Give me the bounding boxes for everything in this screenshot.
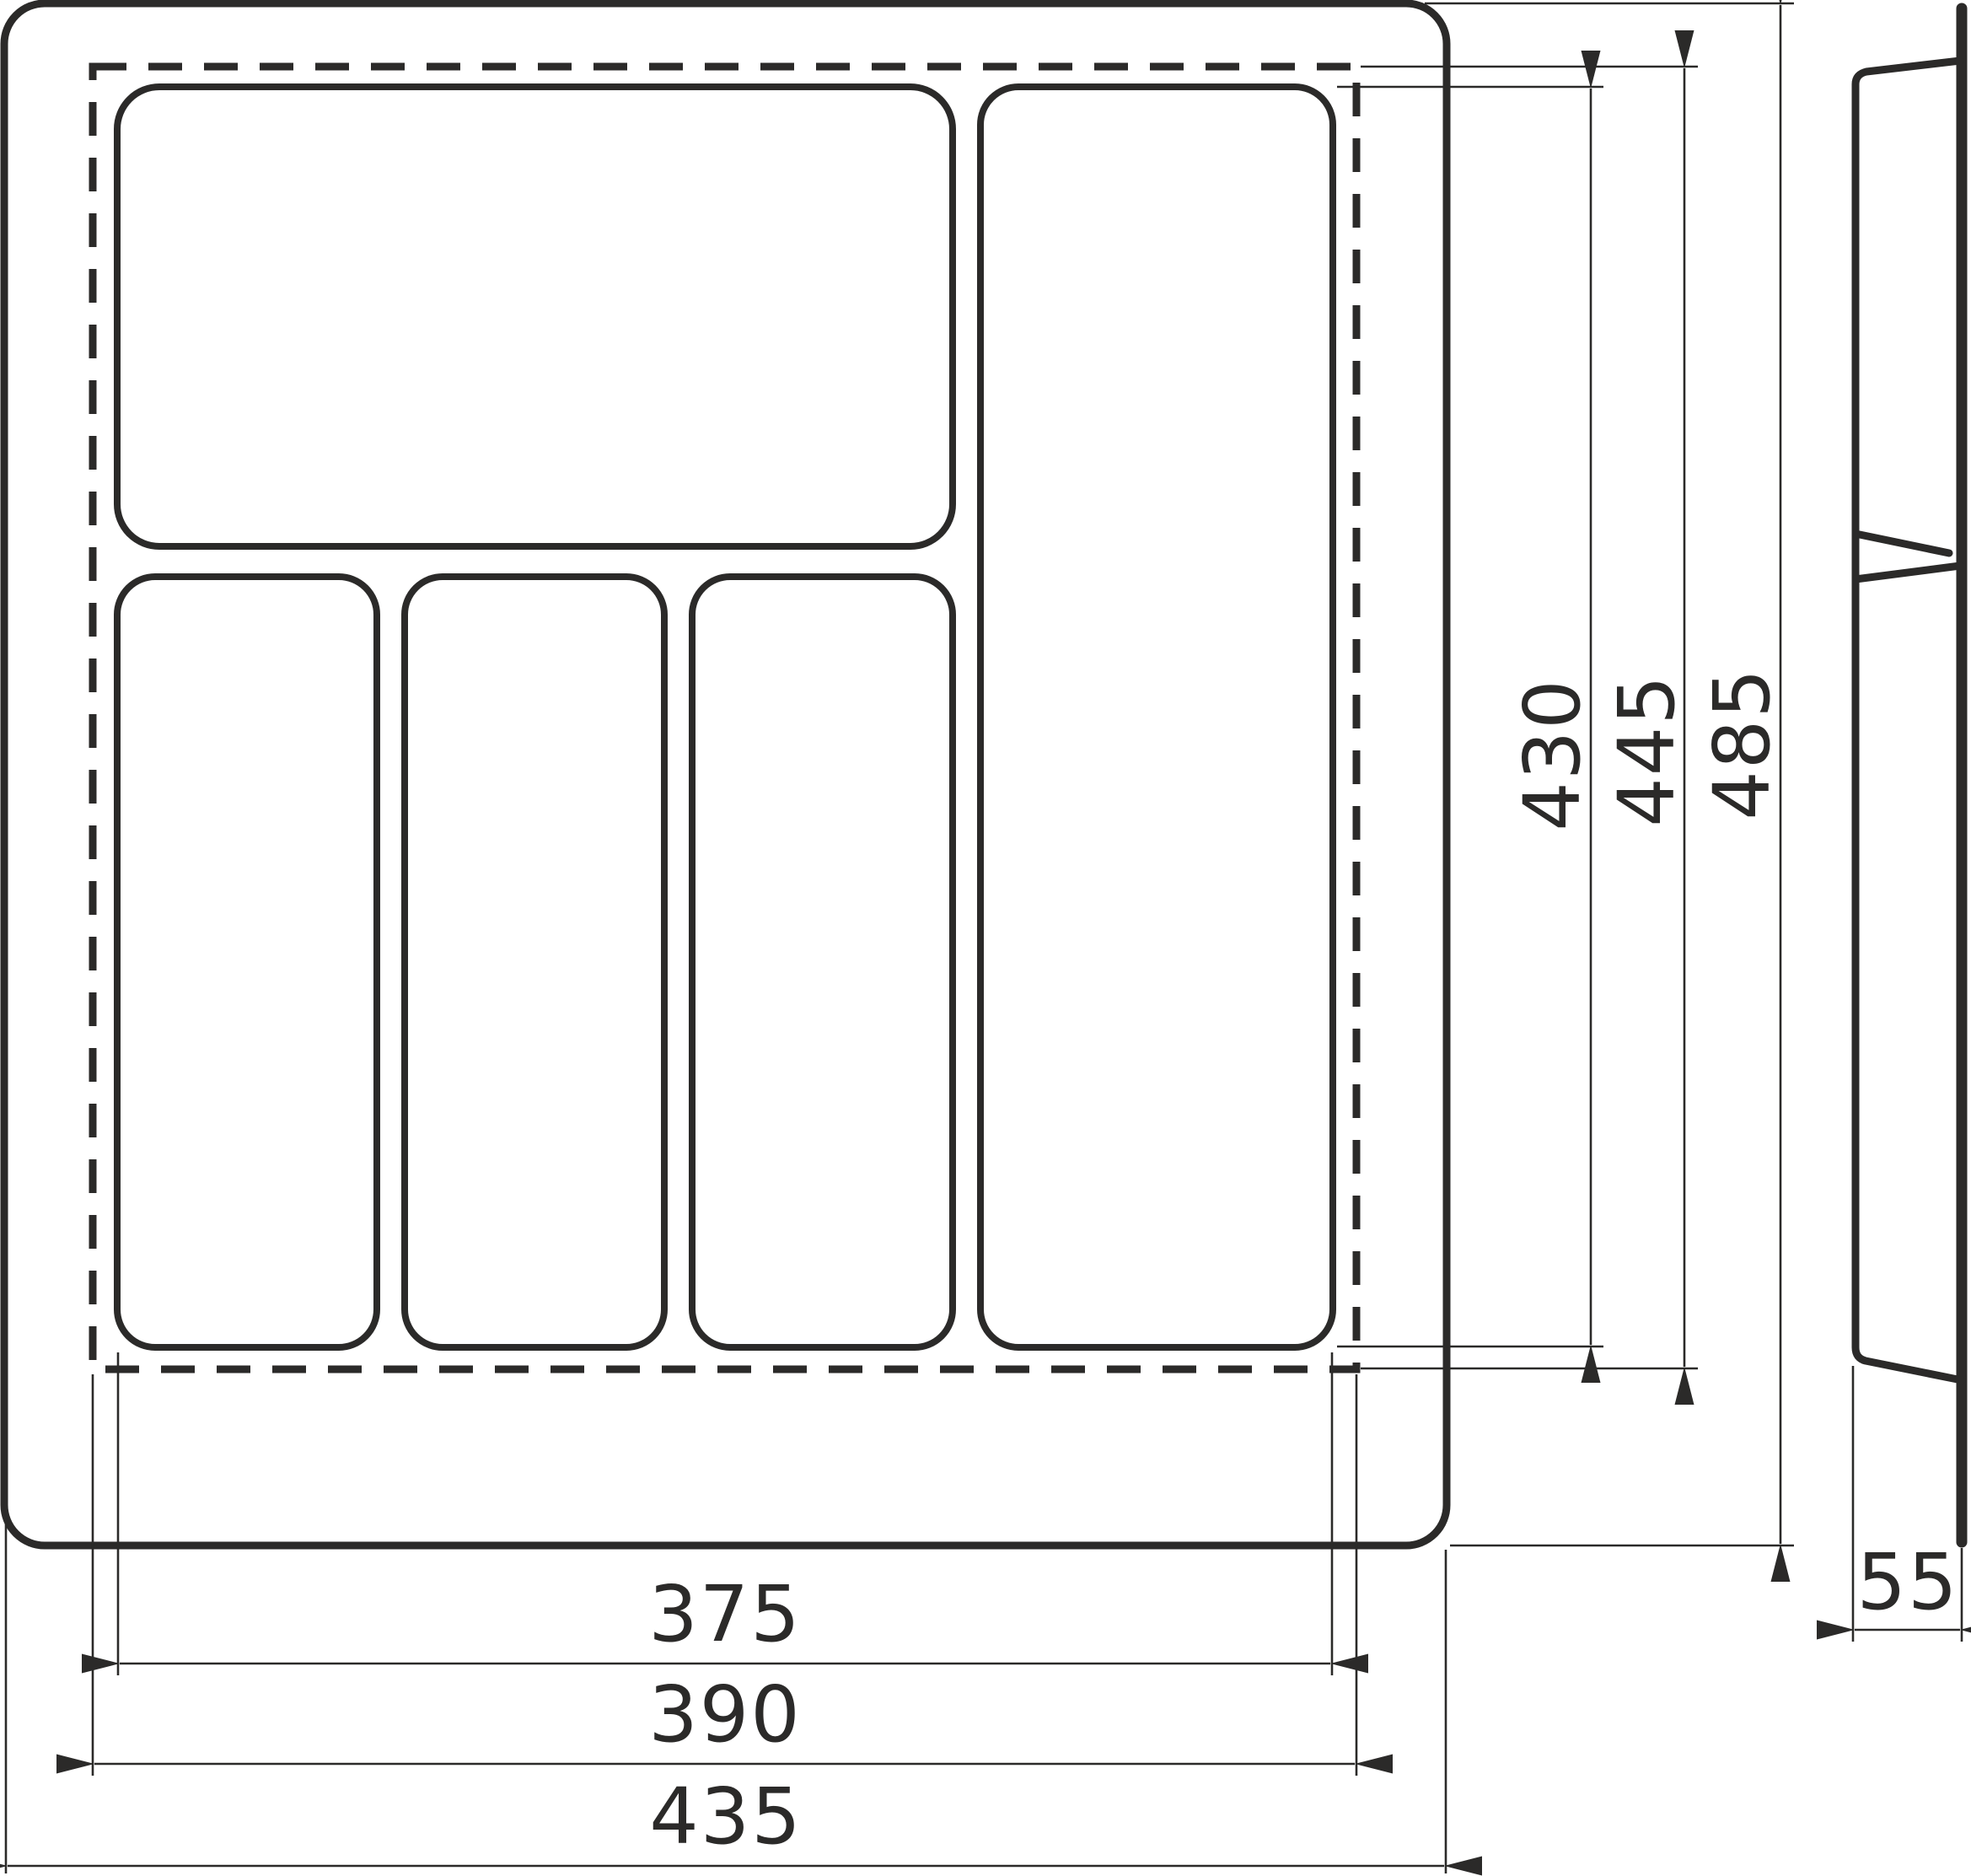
dimension-full-width: 435	[8, 1771, 1444, 1866]
tray-side-profile	[1856, 8, 1962, 1542]
dimension-label-full-height: 485	[1697, 667, 1787, 820]
compartment-column-3	[692, 577, 953, 1347]
compartment-column-1	[117, 577, 377, 1347]
dimension-side-thickness: 55	[1855, 1537, 1960, 1630]
side-profile-left-contour	[1856, 61, 1962, 1380]
dimension-cut-height: 445	[1602, 68, 1692, 1367]
dimension-label-side-thickness: 55	[1856, 1537, 1958, 1627]
tray-outer-outline	[4, 3, 1447, 1545]
side-profile-notch-upper	[1856, 534, 1949, 553]
technical-drawing-canvas: 430 445 485 375 390 435 55	[0, 0, 1971, 1876]
compartment-top-wide	[117, 87, 953, 546]
compartment-column-2	[405, 577, 664, 1347]
dimension-label-cut-height: 445	[1602, 674, 1692, 827]
dimension-label-cut-width: 390	[648, 1669, 802, 1760]
tray-cut-line-dashed	[93, 67, 1356, 1369]
compartment-right-tall	[980, 87, 1333, 1347]
dimension-inner-width: 375	[120, 1569, 1330, 1664]
drawing-page: 430 445 485 375 390 435 55	[0, 0, 1971, 1876]
side-profile-notch-lower	[1856, 566, 1960, 579]
dimension-cut-width: 390	[94, 1669, 1355, 1764]
tray-top-view	[4, 3, 1447, 1545]
dimension-full-height: 485	[1697, 5, 1787, 1544]
dimension-label-inner-width: 375	[648, 1569, 802, 1659]
dimension-inner-height: 430	[1507, 89, 1598, 1345]
dimension-label-inner-height: 430	[1507, 678, 1598, 831]
dimension-label-full-width: 435	[649, 1771, 803, 1862]
